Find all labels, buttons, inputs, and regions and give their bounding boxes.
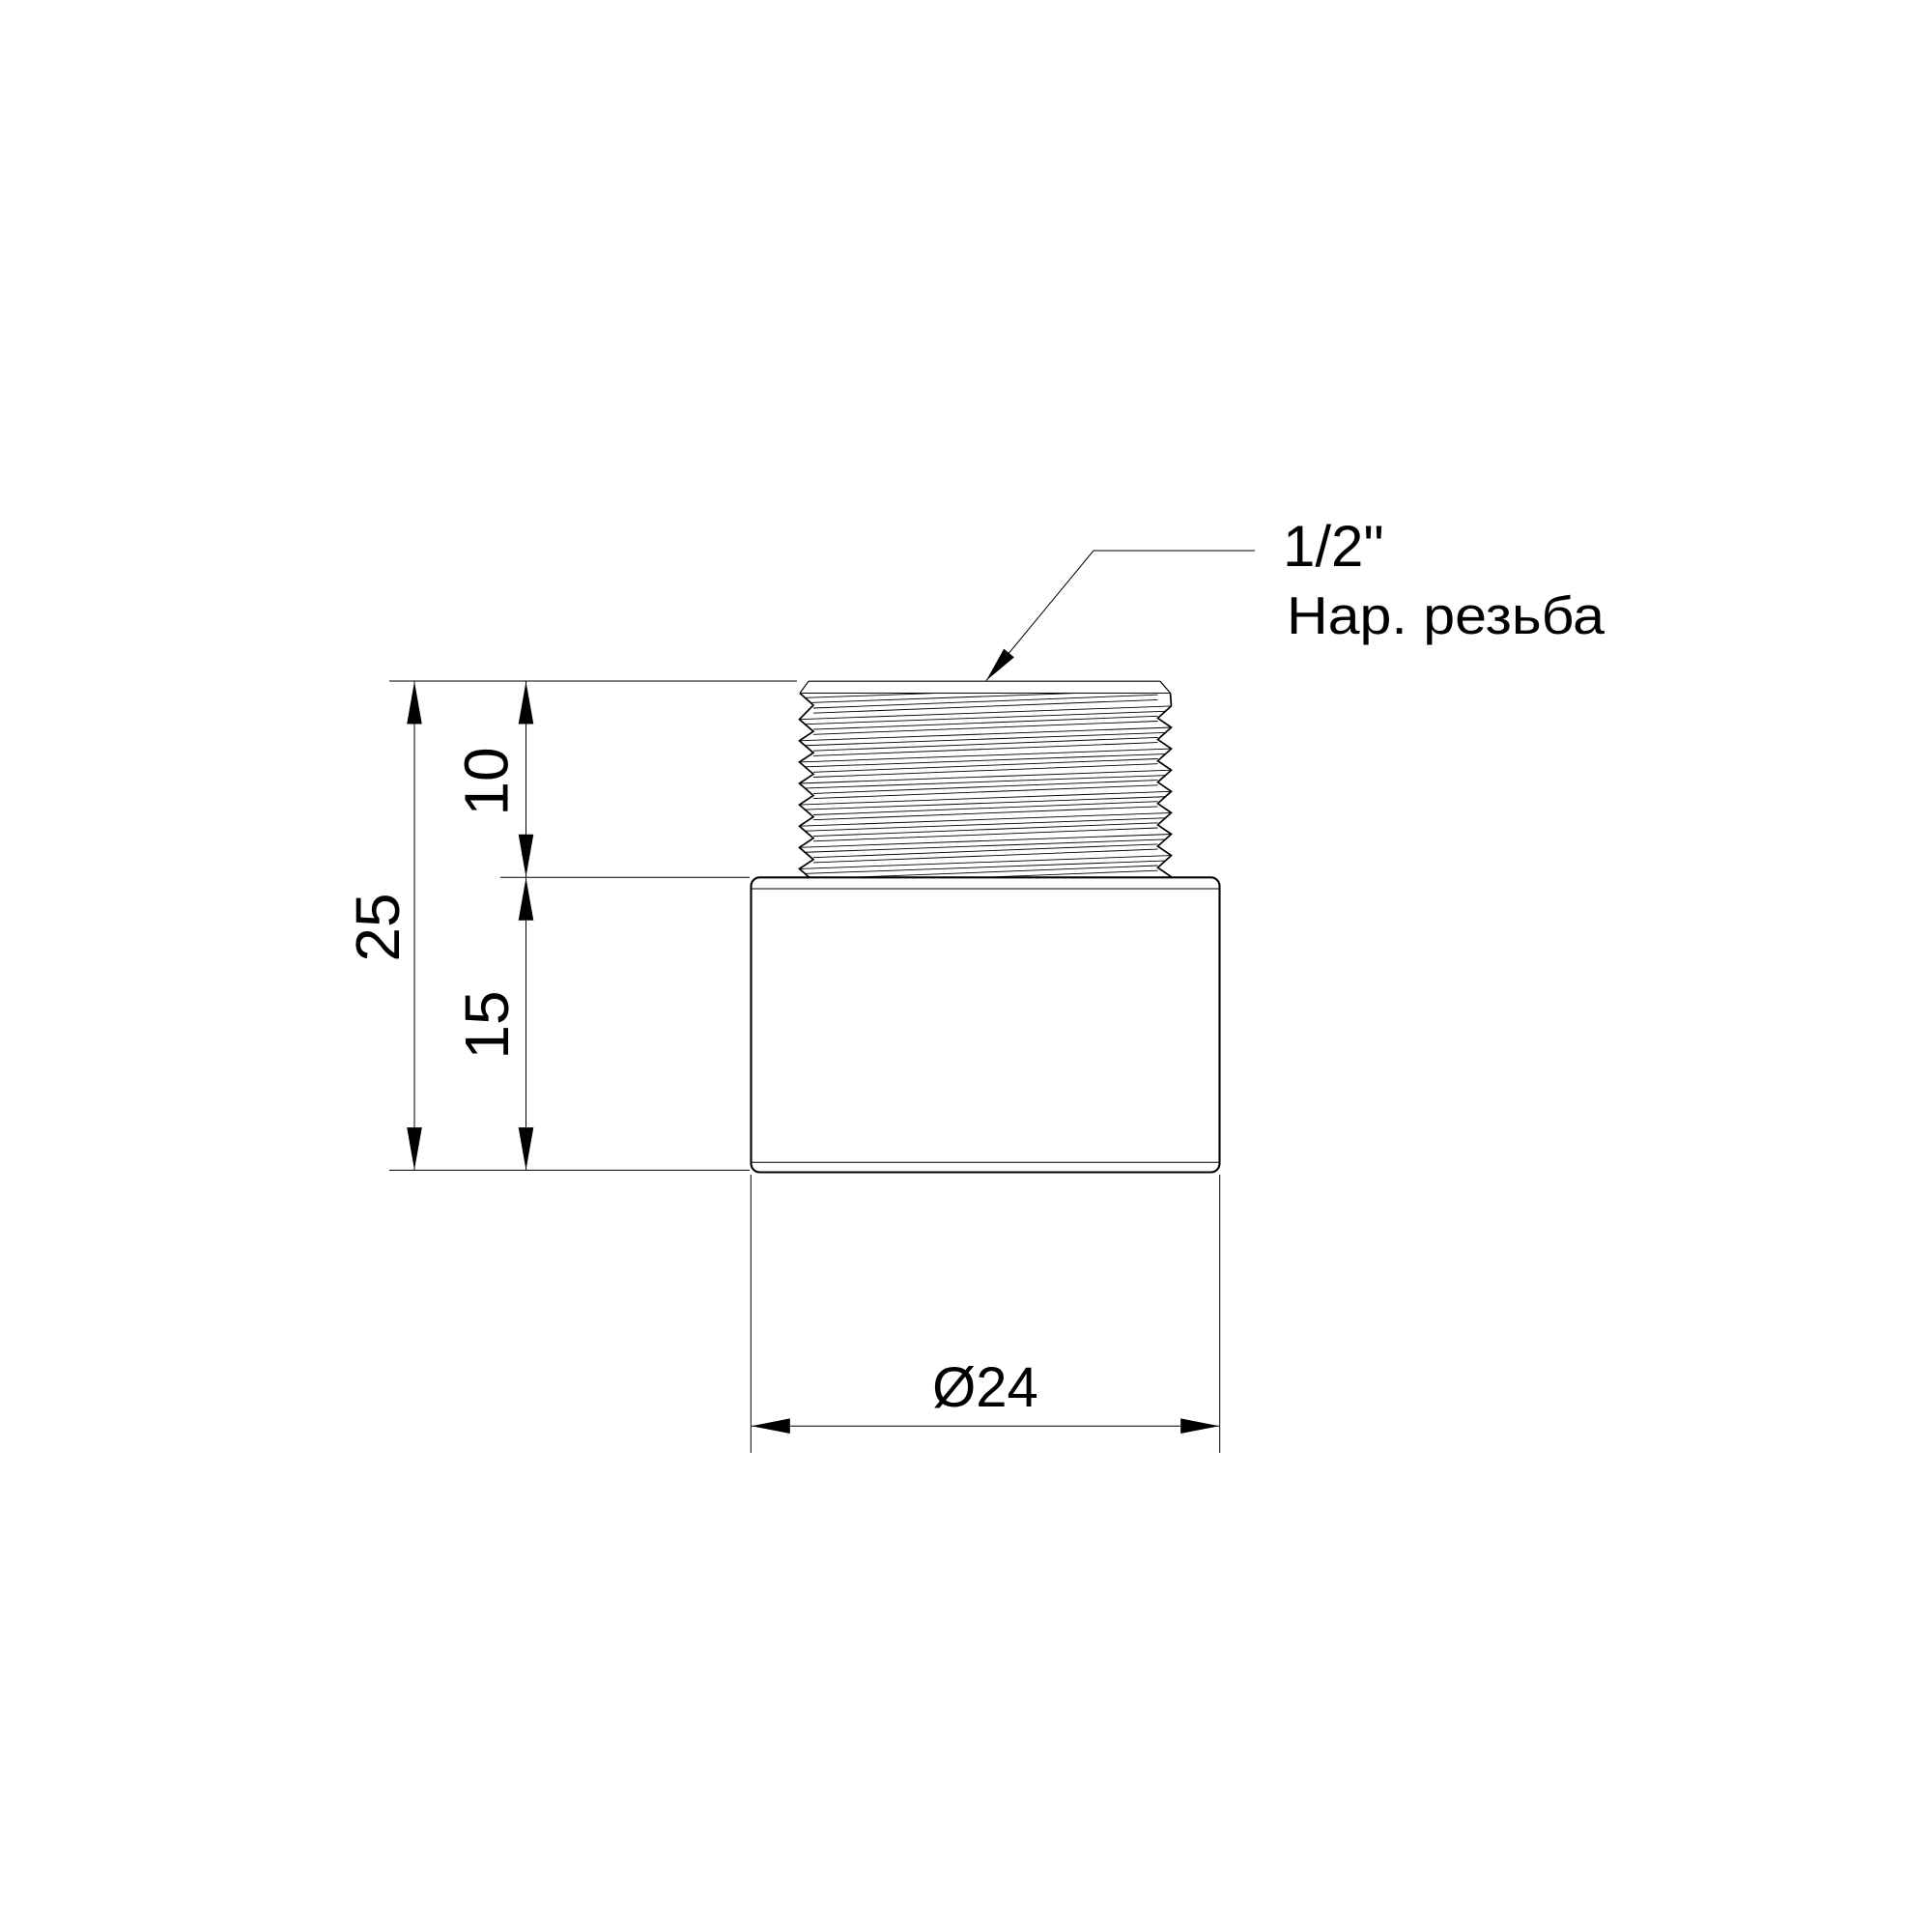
svg-text:1/2": 1/2": [1283, 514, 1384, 579]
svg-text:Нар. резьба: Нар. резьба: [1287, 585, 1605, 645]
svg-text:Ø24: Ø24: [932, 1356, 1038, 1419]
svg-text:15: 15: [452, 990, 522, 1059]
svg-text:10: 10: [452, 747, 522, 815]
svg-text:25: 25: [343, 893, 412, 961]
